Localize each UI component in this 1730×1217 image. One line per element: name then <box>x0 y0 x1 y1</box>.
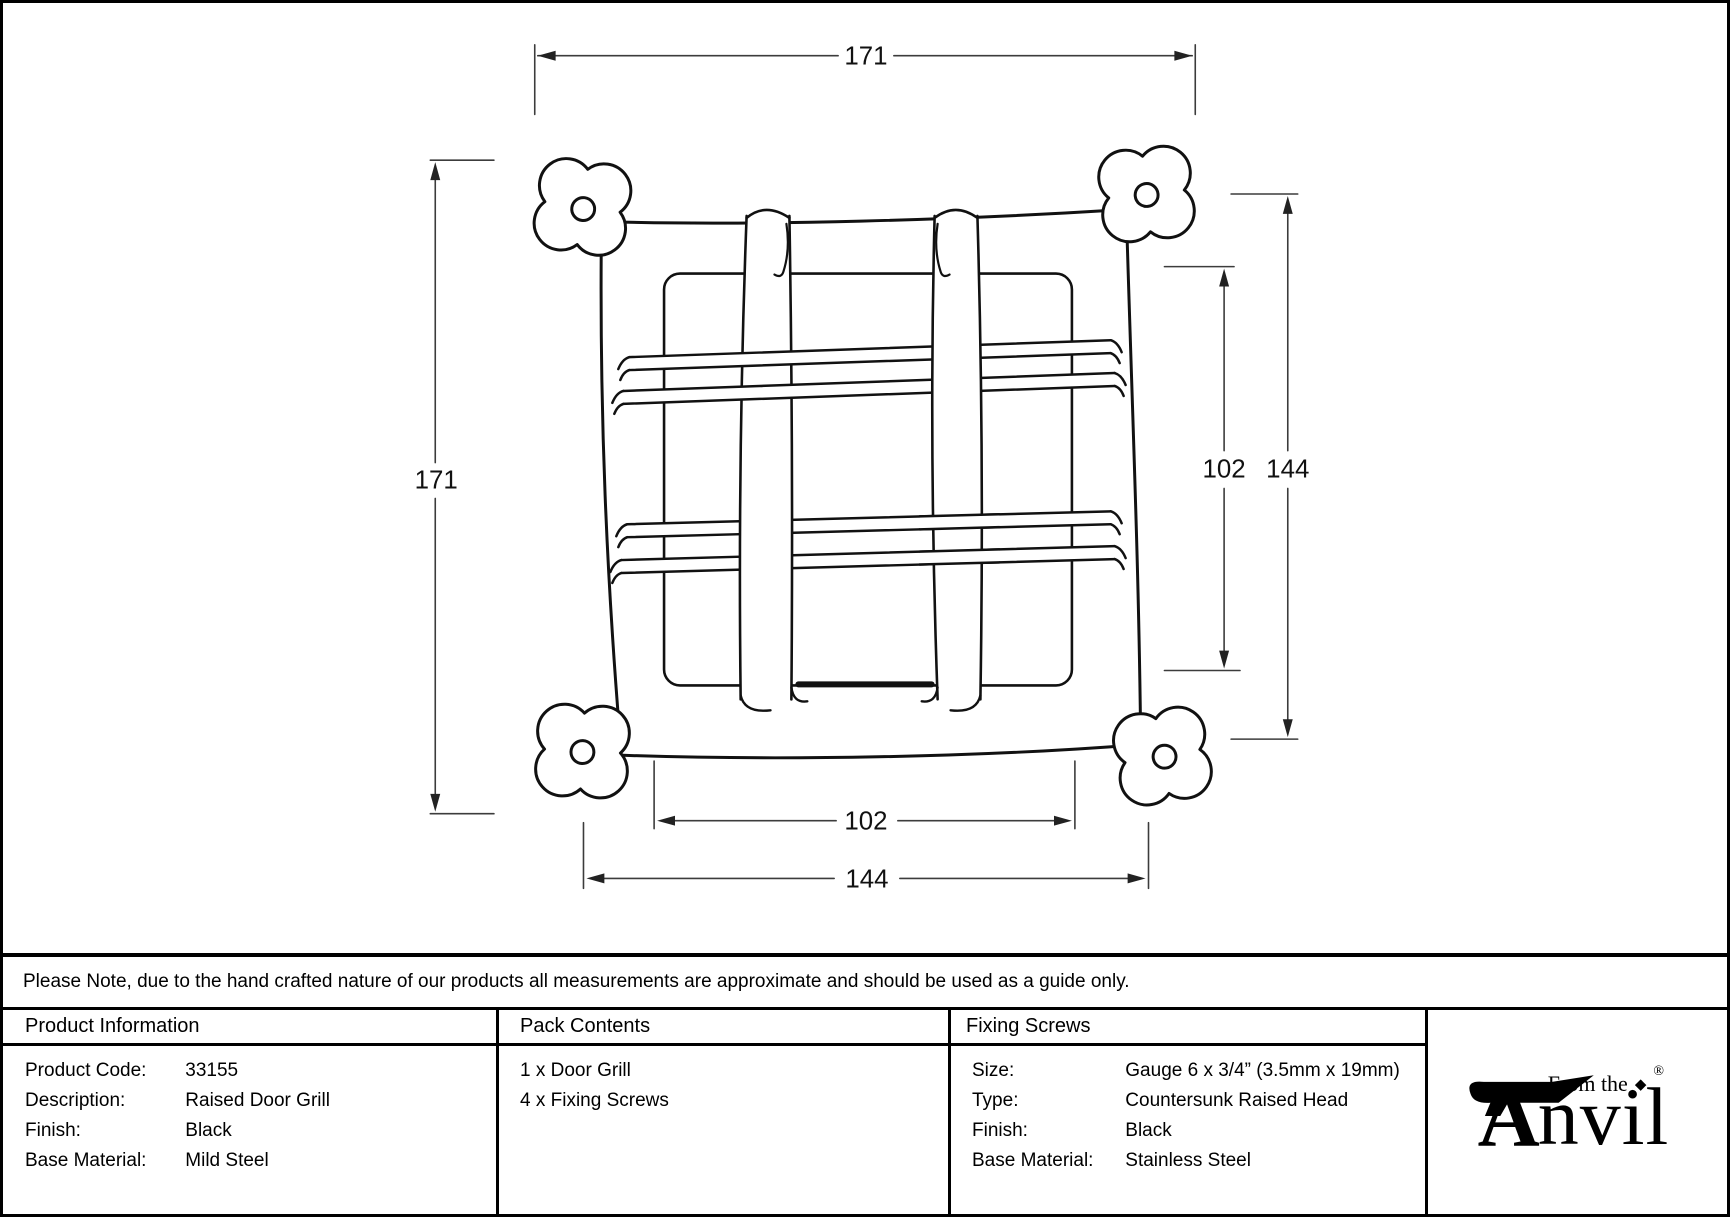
measurement-note-text: Please Note, due to the hand crafted nat… <box>23 971 1130 993</box>
screw-hole-bottom-left <box>570 740 594 764</box>
screw-hole-top-right <box>1134 182 1159 207</box>
description-value: Raised Door Grill <box>185 1090 330 1111</box>
spec-table: Product Information Product Code: 33155 … <box>3 1010 1727 1214</box>
table-row: Finish: Black <box>25 1116 496 1146</box>
fixing-screws-header: Fixing Screws <box>951 1010 1425 1046</box>
screw-size-label: Size: <box>972 1056 1120 1086</box>
dim-label-plate-height: 144 <box>1266 456 1309 484</box>
registered-trademark-icon: ® <box>1653 1065 1664 1079</box>
raised-centre-panel <box>664 274 1072 686</box>
table-row: Type: Countersunk Raised Head <box>972 1086 1425 1116</box>
pack-contents-header: Pack Contents <box>499 1010 948 1046</box>
description-label: Description: <box>25 1086 180 1116</box>
table-row: Base Material: Mild Steel <box>25 1146 496 1176</box>
screw-finish-value: Black <box>1125 1120 1171 1141</box>
screw-finish-label: Finish: <box>972 1116 1120 1146</box>
product-information-header: Product Information <box>3 1010 496 1046</box>
from-the-anvil-logo: A From the ◆ ® nvil <box>1478 1073 1678 1150</box>
plate-bottom-edge <box>616 745 1133 758</box>
brand-column: A From the ◆ ® nvil <box>1425 1010 1727 1214</box>
dim-label-overall-width: 171 <box>844 43 887 71</box>
dim-label-inner-height: 102 <box>1203 456 1246 484</box>
pack-contents-item: 4 x Fixing Screws <box>520 1086 948 1116</box>
pack-contents-column: Pack Contents 1 x Door Grill 4 x Fixing … <box>496 1010 948 1214</box>
base-material-value: Mild Steel <box>185 1150 268 1171</box>
base-material-label: Base Material: <box>25 1146 180 1176</box>
screw-hole-top-left <box>570 196 596 222</box>
dim-label-plate-width: 144 <box>845 865 888 893</box>
corner-top-left <box>531 155 635 259</box>
finish-value: Black <box>185 1120 231 1141</box>
screw-base-material-value: Stainless Steel <box>1125 1150 1251 1171</box>
dim-label-overall-height: 171 <box>415 466 458 494</box>
finish-label: Finish: <box>25 1116 180 1146</box>
screw-type-value: Countersunk Raised Head <box>1125 1090 1348 1111</box>
anvil-letter-a: A <box>1478 1084 1538 1151</box>
measurement-note-bar: Please Note, due to the hand crafted nat… <box>3 953 1727 1010</box>
table-row: Description: Raised Door Grill <box>25 1086 496 1116</box>
plate-left-edge <box>601 232 619 729</box>
screw-size-value: Gauge 6 x 3/4” (3.5mm x 19mm) <box>1125 1060 1400 1081</box>
spec-sheet-page: 171 171 102 144 102 144 Please Note, due… <box>0 0 1730 1217</box>
table-row: Product Code: 33155 <box>25 1056 496 1086</box>
logo-from-the-text: From the <box>1548 1073 1628 1095</box>
product-code-value: 33155 <box>185 1060 238 1081</box>
plate-right-edge <box>1127 222 1141 729</box>
fixing-screws-column: Fixing Screws Size: Gauge 6 x 3/4” (3.5m… <box>948 1010 1425 1214</box>
technical-drawing-area: 171 171 102 144 102 144 <box>3 3 1727 953</box>
corner-bottom-left <box>534 703 630 799</box>
corner-top-right <box>1096 144 1197 245</box>
corner-bottom-right <box>1109 703 1215 809</box>
grill-technical-drawing: 171 171 102 144 102 144 <box>3 3 1727 953</box>
dim-label-inner-width: 102 <box>844 808 887 836</box>
screw-base-material-label: Base Material: <box>972 1146 1120 1176</box>
product-information-column: Product Information Product Code: 33155 … <box>3 1010 496 1214</box>
table-row: Base Material: Stainless Steel <box>972 1146 1425 1176</box>
diamond-icon: ◆ <box>1635 1078 1647 1093</box>
table-row: Finish: Black <box>972 1116 1425 1146</box>
table-row: Size: Gauge 6 x 3/4” (3.5mm x 19mm) <box>972 1056 1425 1086</box>
pack-contents-item: 1 x Door Grill <box>520 1056 948 1086</box>
product-code-label: Product Code: <box>25 1056 180 1086</box>
screw-type-label: Type: <box>972 1086 1120 1116</box>
plate-top-edge <box>611 210 1118 223</box>
